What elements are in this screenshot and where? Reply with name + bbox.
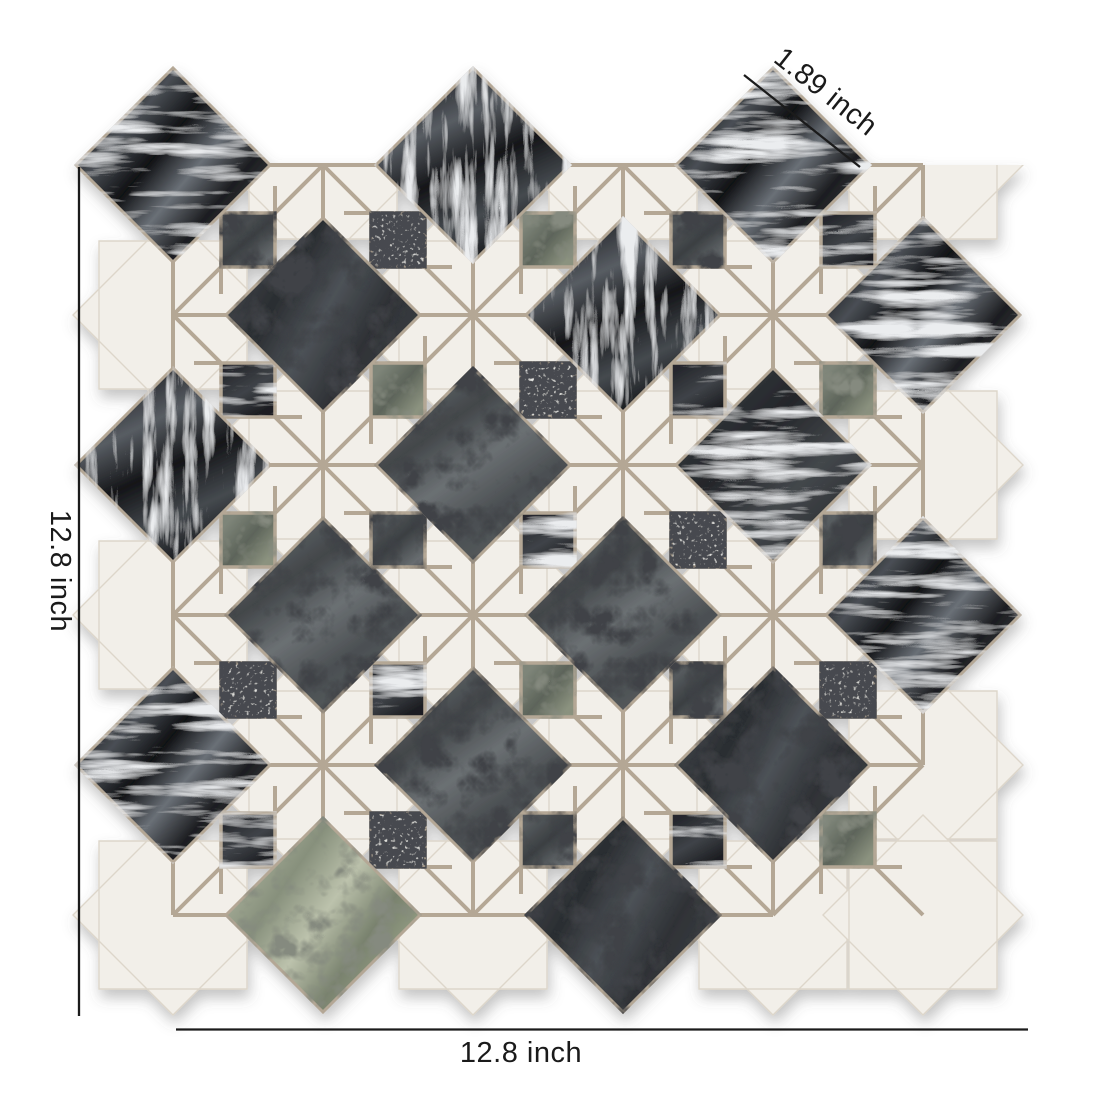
small-square-piece	[671, 363, 725, 417]
tile-photo-canvas: 12.8 inch 12.8 inch 1.89 inch	[0, 0, 1100, 1100]
small-square-piece	[671, 813, 725, 867]
small-square-piece	[221, 213, 275, 267]
small-square-piece	[671, 513, 725, 567]
small-square-piece	[371, 813, 425, 867]
dimension-label-left: 12.8 inch	[44, 510, 76, 632]
small-square-piece	[521, 213, 575, 267]
product-photo: 12.8 inch 12.8 inch 1.89 inch	[0, 0, 1100, 1100]
small-square-piece	[521, 363, 575, 417]
small-square-piece	[371, 663, 425, 717]
small-square-piece	[821, 813, 875, 867]
dimension-label-bottom: 12.8 inch	[460, 1037, 582, 1069]
small-square-piece	[821, 663, 875, 717]
small-square-piece	[521, 513, 575, 567]
small-square-piece	[221, 663, 275, 717]
small-square-piece	[221, 363, 275, 417]
small-square-piece	[521, 813, 575, 867]
small-square-piece	[521, 663, 575, 717]
mosaic-sheet	[73, 65, 1023, 1015]
small-square-piece	[221, 513, 275, 567]
small-square-piece	[671, 663, 725, 717]
small-square-piece	[221, 813, 275, 867]
small-square-piece	[821, 213, 875, 267]
small-square-piece	[371, 363, 425, 417]
small-square-piece	[671, 213, 725, 267]
small-square-piece	[821, 513, 875, 567]
small-square-piece	[371, 213, 425, 267]
small-square-piece	[371, 513, 425, 567]
small-square-piece	[821, 363, 875, 417]
